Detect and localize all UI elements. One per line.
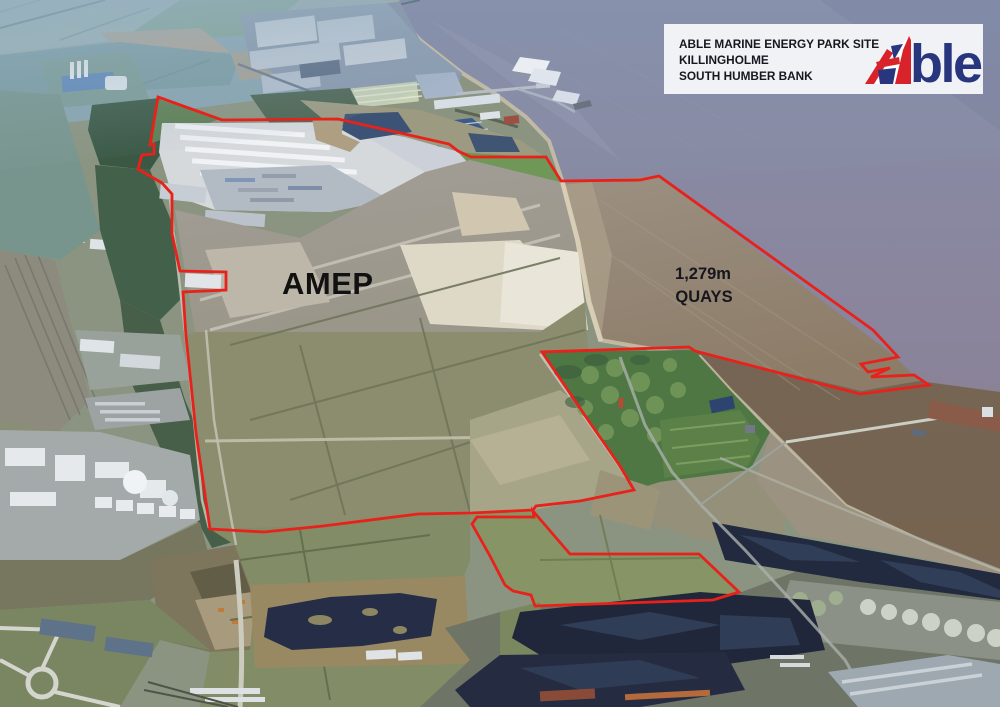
svg-text:KILLINGHOLME: KILLINGHOLME	[679, 53, 769, 67]
svg-text:SOUTH HUMBER BANK: SOUTH HUMBER BANK	[679, 69, 813, 83]
svg-text:AMEP: AMEP	[282, 266, 374, 301]
svg-text:1,279m: 1,279m	[675, 265, 731, 283]
svg-text:ble: ble	[910, 34, 982, 94]
svg-text:QUAYS: QUAYS	[675, 288, 732, 306]
svg-text:ABLE MARINE ENERGY PARK SITE: ABLE MARINE ENERGY PARK SITE	[679, 37, 879, 51]
